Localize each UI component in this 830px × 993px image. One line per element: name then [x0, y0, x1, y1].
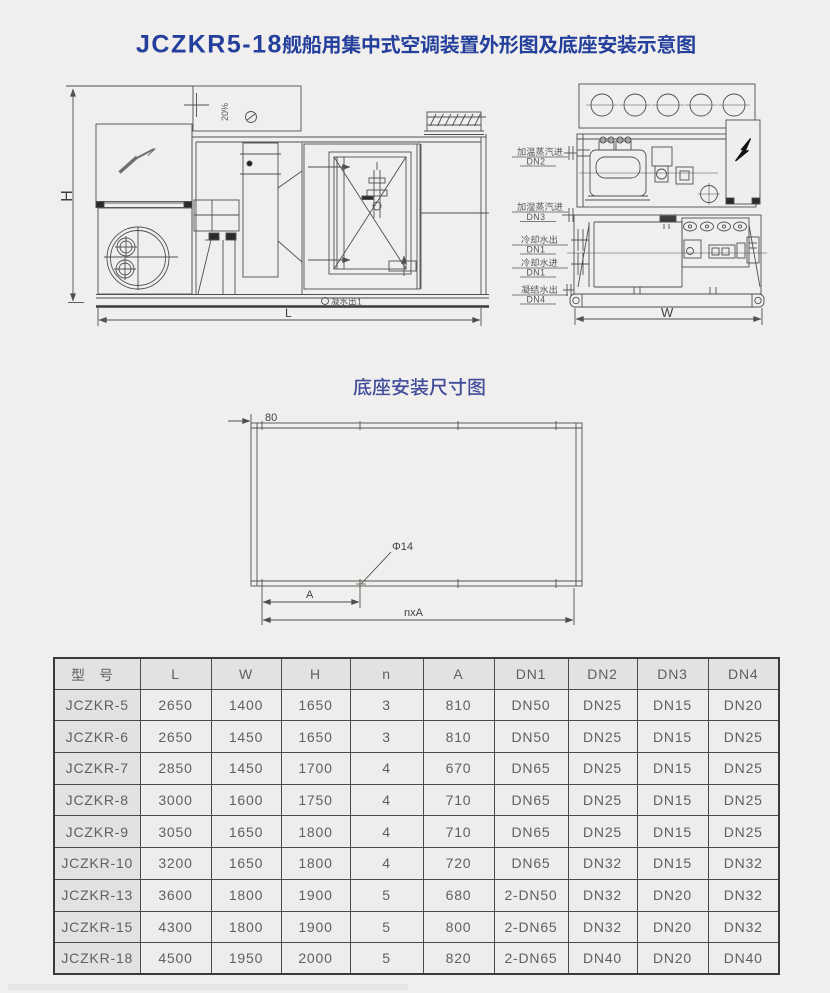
- svg-text:DN4: DN4: [526, 295, 545, 305]
- svg-text:DN2: DN2: [526, 157, 545, 167]
- svg-text:nxA: nxA: [404, 607, 424, 619]
- svg-text:1: 1: [357, 297, 362, 307]
- svg-text:W: W: [661, 305, 674, 320]
- svg-text:H: H: [59, 190, 76, 202]
- svg-text:20%: 20%: [220, 103, 230, 121]
- svg-text:80: 80: [265, 412, 277, 424]
- svg-text:DN3: DN3: [526, 212, 545, 222]
- svg-text:JCZKR5-18: JCZKR5-18: [136, 31, 283, 59]
- svg-text:DN1: DN1: [526, 245, 545, 255]
- svg-text:DN1: DN1: [526, 268, 545, 278]
- svg-text:Φ14: Φ14: [392, 541, 413, 553]
- svg-text:A: A: [306, 589, 314, 601]
- svg-text:L: L: [285, 306, 292, 320]
